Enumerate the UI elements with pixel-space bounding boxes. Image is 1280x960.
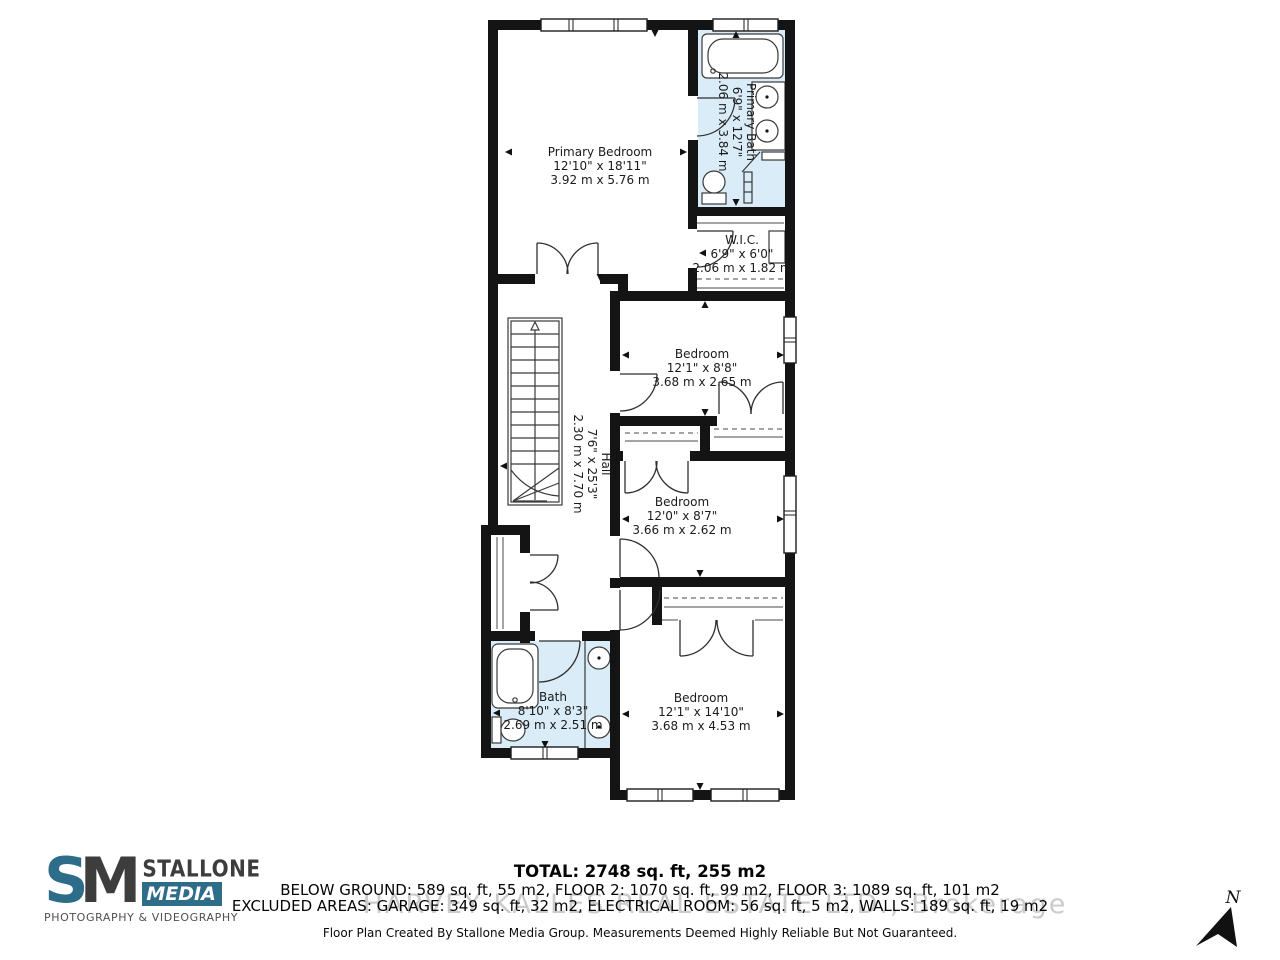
toilet-tank [702,193,726,204]
floor-plan-drawing: Primary Bedroom 12'10" x 18'11" 3.92 m x… [0,0,1280,960]
room-dims-metric: 3.66 m x 2.62 m [632,523,731,537]
room-label-bedroom-1: Bedroom 12'1" x 8'8" 3.68 m x 2.65 m [652,347,751,389]
room-dims-imperial: 6'9" x 12'7" [730,87,744,158]
room-label-bedroom-2: Bedroom 12'0" x 8'7" 3.66 m x 2.62 m [632,495,731,537]
window [541,19,647,31]
window [784,476,796,553]
room-label-bedroom-3: Bedroom 12'1" x 14'10" 3.68 m x 4.53 m [651,691,750,733]
window [627,789,693,801]
room-dims-imperial: 12'0" x 8'7" [647,509,718,523]
stairs [508,318,562,505]
room-name: Primary Bath [744,83,758,161]
room-name: Primary Bedroom [548,145,652,159]
room-dims-metric: 3.68 m x 4.53 m [651,719,750,733]
disclaimer-line: Floor Plan Created By Stallone Media Gro… [0,926,1280,940]
room-dims-metric: 2.06 m x 1.82 m [692,261,791,275]
room-name: W.I.C. [725,233,759,247]
hall-closet-fittings [497,537,503,629]
sink-drain [765,129,768,132]
sink-drain [765,95,768,98]
room-dims-imperial: 8'10" x 8'3" [518,704,589,718]
room-dims-metric: 3.92 m x 5.76 m [550,173,649,187]
toilet-tank [492,717,501,743]
window [511,747,578,759]
room-dims-imperial: 12'1" x 14'10" [658,705,744,719]
room-dims-metric: 3.68 m x 2.65 m [652,375,751,389]
total-area-line: TOTAL: 2748 sq. ft, 255 m2 [0,861,1280,882]
room-name: Bedroom [655,495,709,509]
area-summary: TOTAL: 2748 sq. ft, 255 m2 BELOW GROUND:… [0,861,1280,914]
room-label-primary-bedroom: Primary Bedroom 12'10" x 18'11" 3.92 m x… [548,145,652,187]
window [784,317,796,363]
room-dims-metric: 2.06 m x 3.84 m [716,72,730,171]
room-name: Bath [539,690,567,704]
sink-drain [597,656,600,659]
room-dims-metric: 2.30 m x 7.70 m [571,414,585,513]
toilet-icon [703,171,725,193]
window [713,19,778,31]
room-dims-imperial: 12'1" x 8'8" [667,361,738,375]
bathtub-icon [492,644,538,708]
shower-shelf [762,152,785,160]
excluded-areas-line: EXCLUDED AREAS: GARAGE: 349 sq. ft, 32 m… [0,898,1280,914]
room-dims-imperial: 6'9" x 6'0" [711,247,774,261]
room-label-primary-bath: Primary Bath 6'9" x 12'7" 2.06 m x 3.84 … [716,72,758,171]
window [711,789,779,801]
room-label-hall: Hall 7'6" x 25'3" 2.30 m x 7.70 m [571,414,613,513]
floor-plan-page: Primary Bedroom 12'10" x 18'11" 3.92 m x… [0,0,1280,960]
room-dims-imperial: 12'10" x 18'11" [553,159,646,173]
floor-areas-line: BELOW GROUND: 589 sq. ft, 55 m2, FLOOR 2… [0,882,1280,898]
room-dims-metric: 2.69 m x 2.51 m [503,718,602,732]
room-name: Bedroom [675,347,729,361]
room-dims-imperial: 7'6" x 25'3" [585,429,599,500]
room-name: Bedroom [674,691,728,705]
room-name: Hall [599,452,613,475]
